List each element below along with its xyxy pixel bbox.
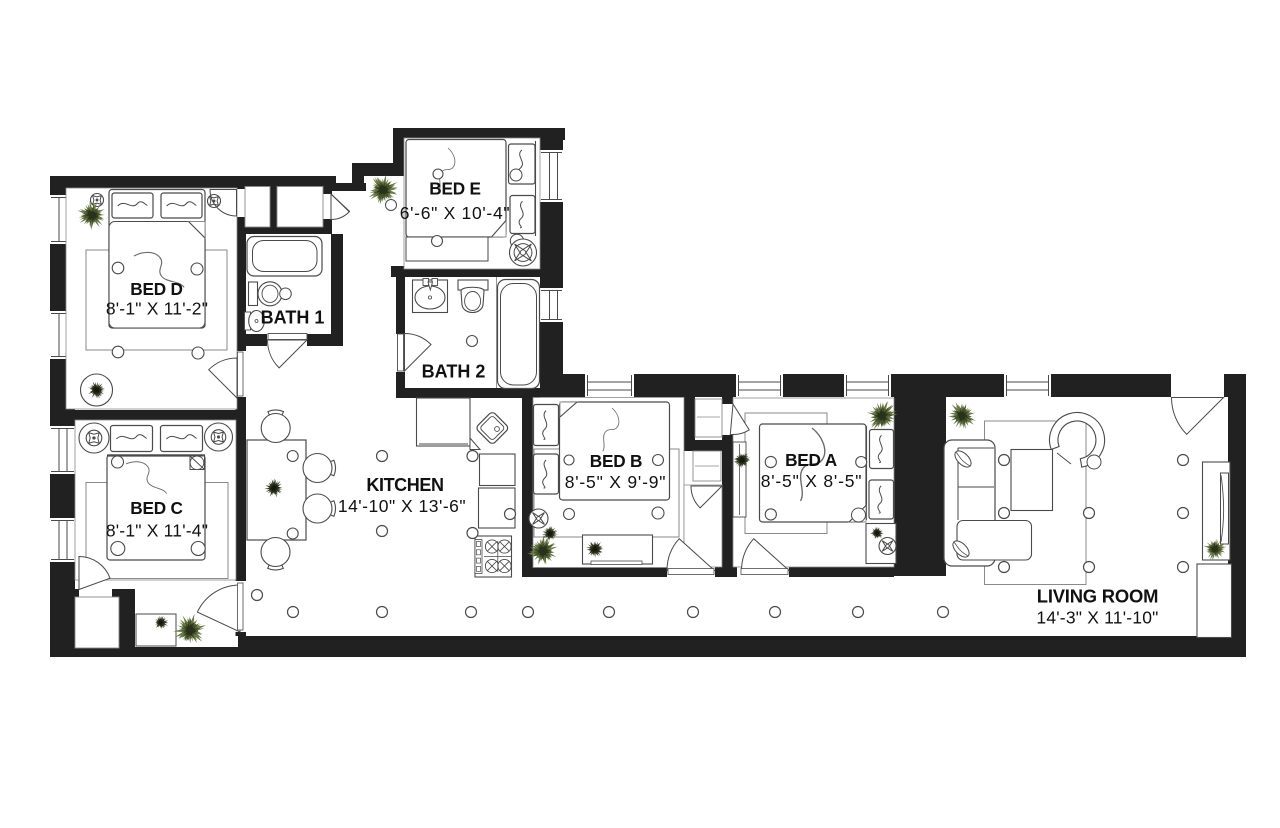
svg-text:BED C: BED C	[130, 498, 182, 518]
svg-text:KITCHEN: KITCHEN	[366, 475, 443, 495]
svg-text:BED E: BED E	[429, 179, 481, 199]
svg-text:BED A: BED A	[785, 450, 837, 470]
svg-text:BATH 1: BATH 1	[261, 308, 325, 328]
svg-text:14'-3" X 11'-10": 14'-3" X 11'-10"	[1036, 608, 1158, 628]
svg-text:BATH 2: BATH 2	[422, 362, 486, 382]
svg-text:8'-1" X 11'-4": 8'-1" X 11'-4"	[106, 521, 208, 541]
svg-text:8'-1" X 11'-2": 8'-1" X 11'-2"	[106, 299, 208, 319]
svg-text:BED B: BED B	[590, 451, 642, 471]
svg-text:8'-5" X 8'-5": 8'-5" X 8'-5"	[761, 471, 863, 491]
svg-text:14'-10" X 13'-6": 14'-10" X 13'-6"	[338, 496, 466, 516]
svg-text:6'-6" X 10'-4": 6'-6" X 10'-4"	[400, 203, 511, 223]
svg-text:8'-5" X 9'-9": 8'-5" X 9'-9"	[565, 472, 667, 492]
svg-text:LIVING ROOM: LIVING ROOM	[1037, 586, 1158, 607]
svg-text:BED D: BED D	[130, 279, 182, 299]
